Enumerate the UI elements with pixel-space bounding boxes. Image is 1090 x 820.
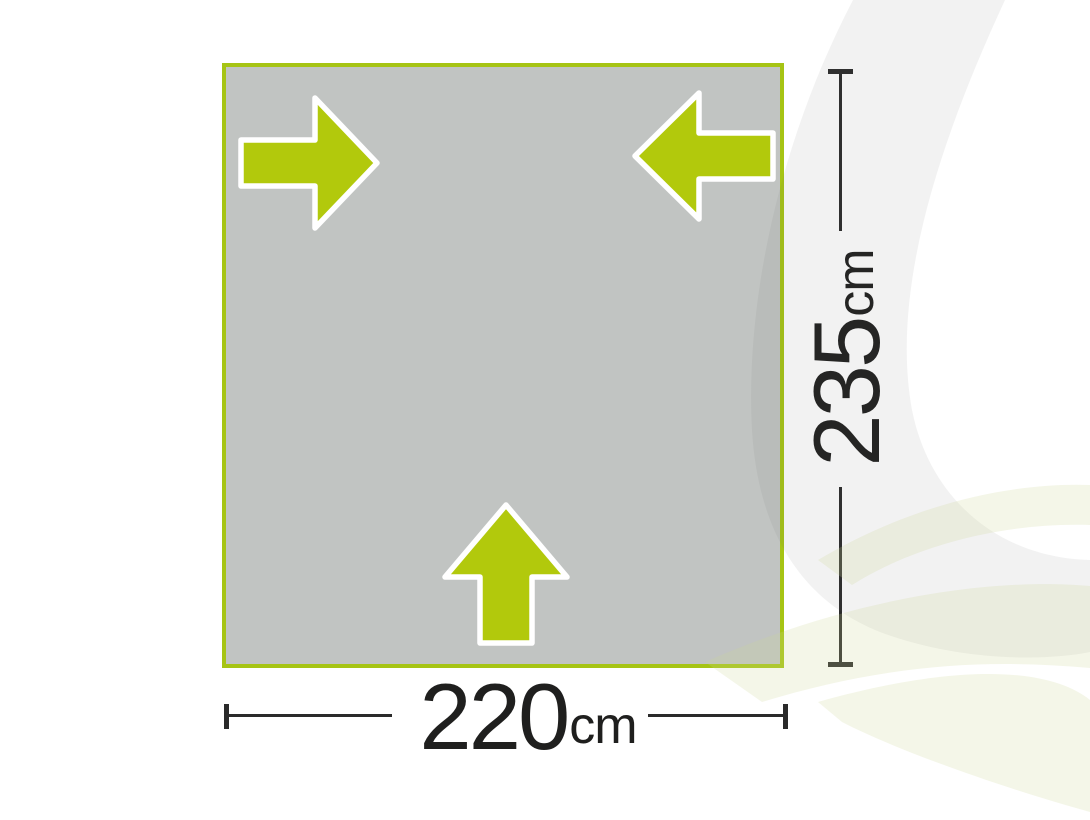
arrow-up-icon [440,498,572,648]
arrow-right-icon [236,90,382,236]
arrow-right-shape [241,98,377,228]
width-dim-line-left [226,714,392,717]
arrow-up-shape [445,505,567,643]
width-unit: cm [569,697,636,755]
width-value: 220 [419,664,567,769]
height-dim-line-upper [839,71,842,231]
height-value: 235 [794,319,899,467]
arrow-left-shape [635,93,773,219]
height-dim-line-lower [839,487,842,666]
width-dim-line-right [648,714,786,717]
width-dim-cap-right [783,704,788,729]
product-dimension-diagram: 235cm 220cm [0,0,1090,820]
swirl-wave-lower [818,674,1090,812]
arrow-left-icon [630,88,778,224]
swirl-wave-upper [818,485,1090,585]
width-dimension-label: 220cm [419,670,636,764]
height-dim-cap-bottom [828,662,853,667]
height-dimension-label: 235cm [800,249,894,466]
height-unit: cm [827,249,885,316]
